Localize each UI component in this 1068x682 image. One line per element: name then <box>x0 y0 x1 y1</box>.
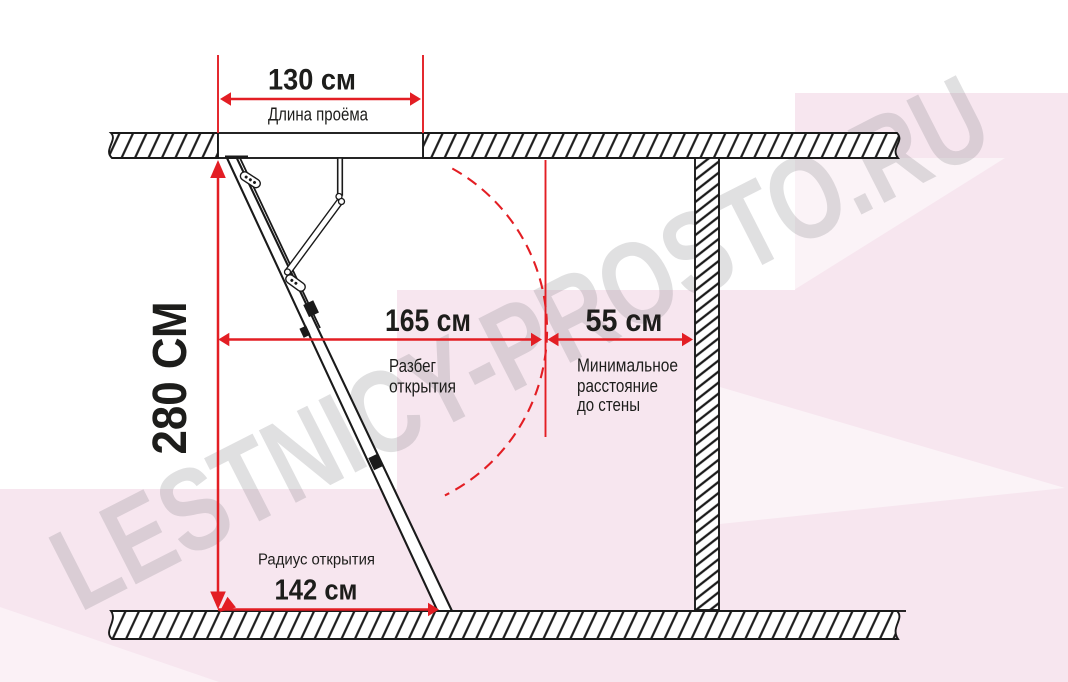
svg-text:142 см: 142 см <box>275 575 358 607</box>
svg-text:Радиус открытия: Радиус открытия <box>258 552 375 569</box>
svg-text:Разбег: Разбег <box>389 355 436 376</box>
svg-text:280 СМ: 280 СМ <box>144 302 197 455</box>
svg-text:Минимальное: Минимальное <box>577 355 678 376</box>
svg-text:55 см: 55 см <box>586 302 663 338</box>
svg-text:130 см: 130 см <box>268 64 356 97</box>
svg-text:расстояние: расстояние <box>577 375 658 396</box>
svg-text:165 см: 165 см <box>385 302 471 338</box>
svg-text:до стены: до стены <box>577 394 640 415</box>
svg-text:открытия: открытия <box>389 376 456 397</box>
svg-text:Длина проёма: Длина проёма <box>268 104 369 125</box>
